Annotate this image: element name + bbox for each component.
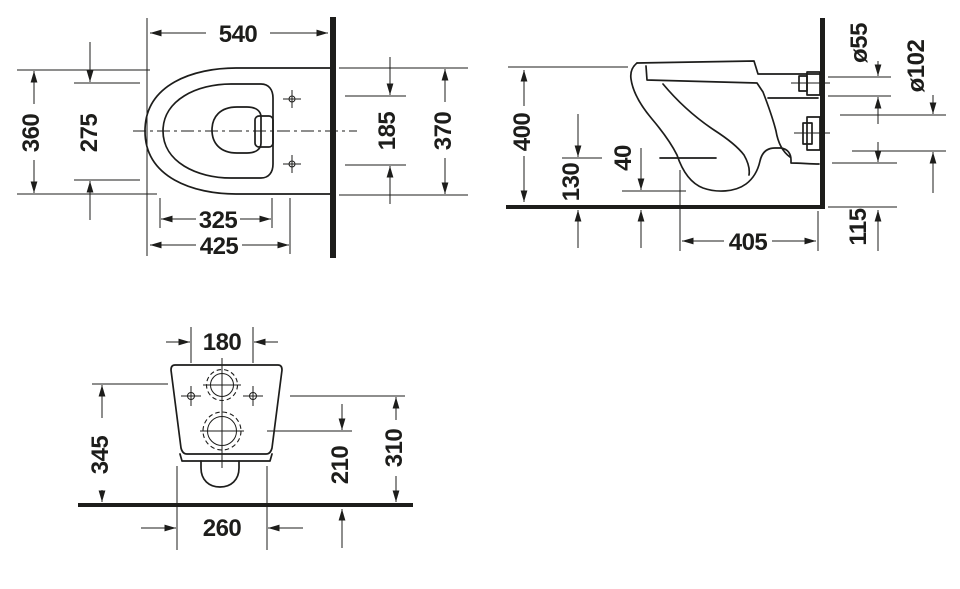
technical-drawing-page: 540 360 275 185 370 325 425	[0, 0, 960, 589]
floor-section-side	[506, 205, 825, 209]
dim-label-345: 345	[87, 436, 114, 475]
rear-fixing-hole-left	[181, 386, 201, 406]
plan-view: 540 360 275 185 370 325 425	[17, 17, 468, 260]
dim-label-dia102: ø102	[903, 39, 930, 92]
bowl-water-path	[212, 107, 261, 153]
dim-label-dia55: ø55	[846, 23, 873, 63]
dim-label-40: 40	[610, 145, 637, 171]
dim-label-310: 310	[381, 429, 408, 468]
side-bowl-inner-path	[663, 84, 749, 175]
dim-label-370: 370	[430, 112, 457, 151]
dim-label-275: 275	[76, 114, 103, 153]
toilet-dimension-drawing: 540 360 275 185 370 325 425	[0, 0, 960, 589]
side-top-edge-path	[637, 61, 820, 74]
rear-outline	[171, 365, 282, 487]
dim-label-180: 180	[203, 329, 242, 356]
rear-view: 180 345 210 310 260	[78, 327, 413, 550]
dim-label-360: 360	[18, 114, 45, 153]
dim-label-130: 130	[558, 163, 585, 202]
dim-label-400: 400	[509, 113, 536, 152]
rear-fixing-hole-right	[243, 386, 263, 406]
dim-label-115: 115	[845, 208, 872, 245]
wall-section-plan	[330, 17, 336, 258]
dim-label-210: 210	[327, 446, 354, 485]
dim-label-540: 540	[219, 21, 258, 48]
rear-body-path	[171, 365, 282, 454]
side-view: 400 130 40 ø55 ø102 405 115	[506, 18, 946, 256]
rear-dimension-lines	[92, 327, 405, 550]
side-dimension-lines	[508, 61, 946, 251]
rear-rim-path	[180, 454, 272, 461]
side-outline	[631, 61, 820, 191]
dim-label-325: 325	[199, 207, 238, 234]
dim-label-185: 185	[374, 112, 401, 151]
fixing-hole-marker-top	[283, 90, 301, 108]
dim-label-405: 405	[729, 229, 768, 256]
floor-section-rear	[78, 503, 413, 507]
fixing-hole-marker-bottom	[283, 155, 301, 173]
dim-label-425: 425	[200, 233, 239, 260]
side-seat-back-path	[646, 66, 790, 157]
rear-outlet-path	[201, 461, 239, 487]
wall-section-side	[820, 18, 825, 207]
dim-label-260: 260	[203, 515, 242, 542]
